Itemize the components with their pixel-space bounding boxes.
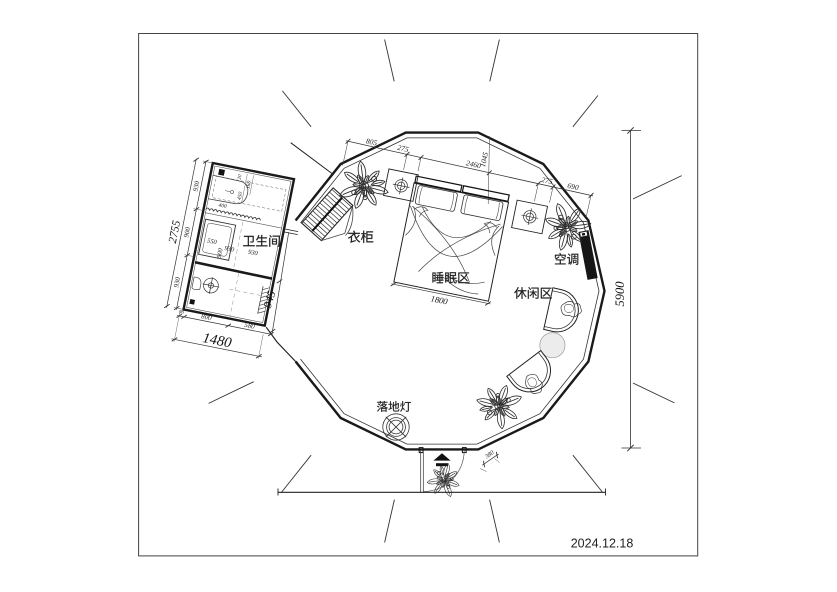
svg-text:2024.12.18: 2024.12.18: [571, 537, 634, 551]
svg-text:5900: 5900: [613, 281, 627, 307]
